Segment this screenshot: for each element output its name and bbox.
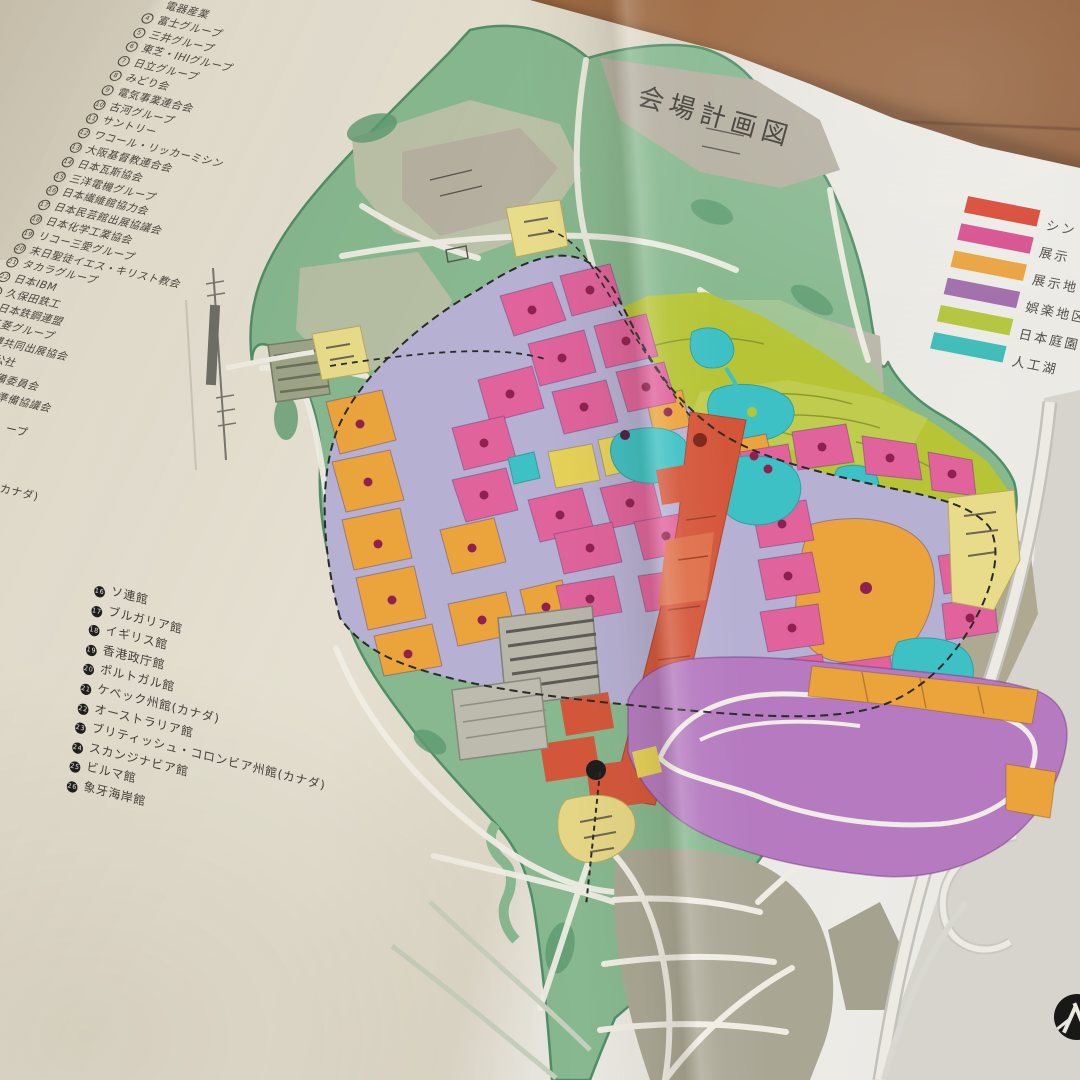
legend-swatch-exhibit-1 — [957, 223, 1034, 254]
legend-swatch-lake — [930, 332, 1007, 363]
legend-swatch-amusement — [944, 278, 1021, 309]
legend-label: 展示 — [1037, 242, 1072, 266]
legend-swatch-garden — [937, 305, 1014, 336]
legend-label: シン — [1044, 215, 1079, 239]
legend-swatch-exhibit-2 — [950, 250, 1027, 281]
legend-label: 人工湖 — [1010, 351, 1060, 378]
legend-label: 展示地 — [1031, 269, 1080, 296]
booklet-photo: 名神高速道路 — [0, 0, 1080, 1080]
logo-stripe — [1073, 1002, 1080, 1031]
